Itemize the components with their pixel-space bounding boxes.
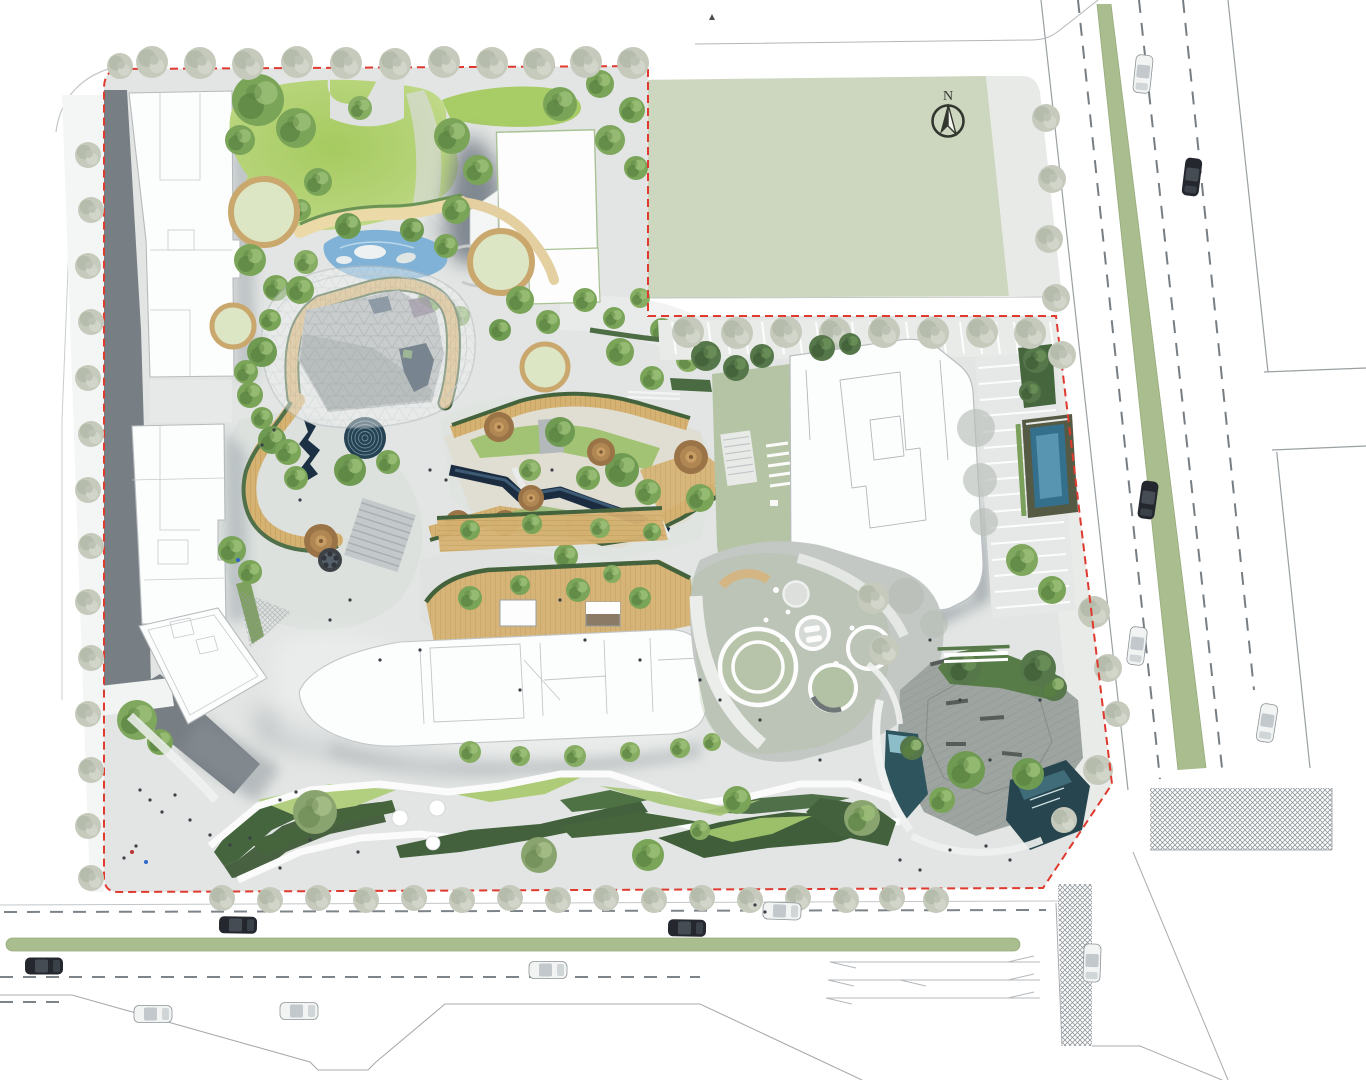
svg-text:N: N	[943, 89, 953, 104]
